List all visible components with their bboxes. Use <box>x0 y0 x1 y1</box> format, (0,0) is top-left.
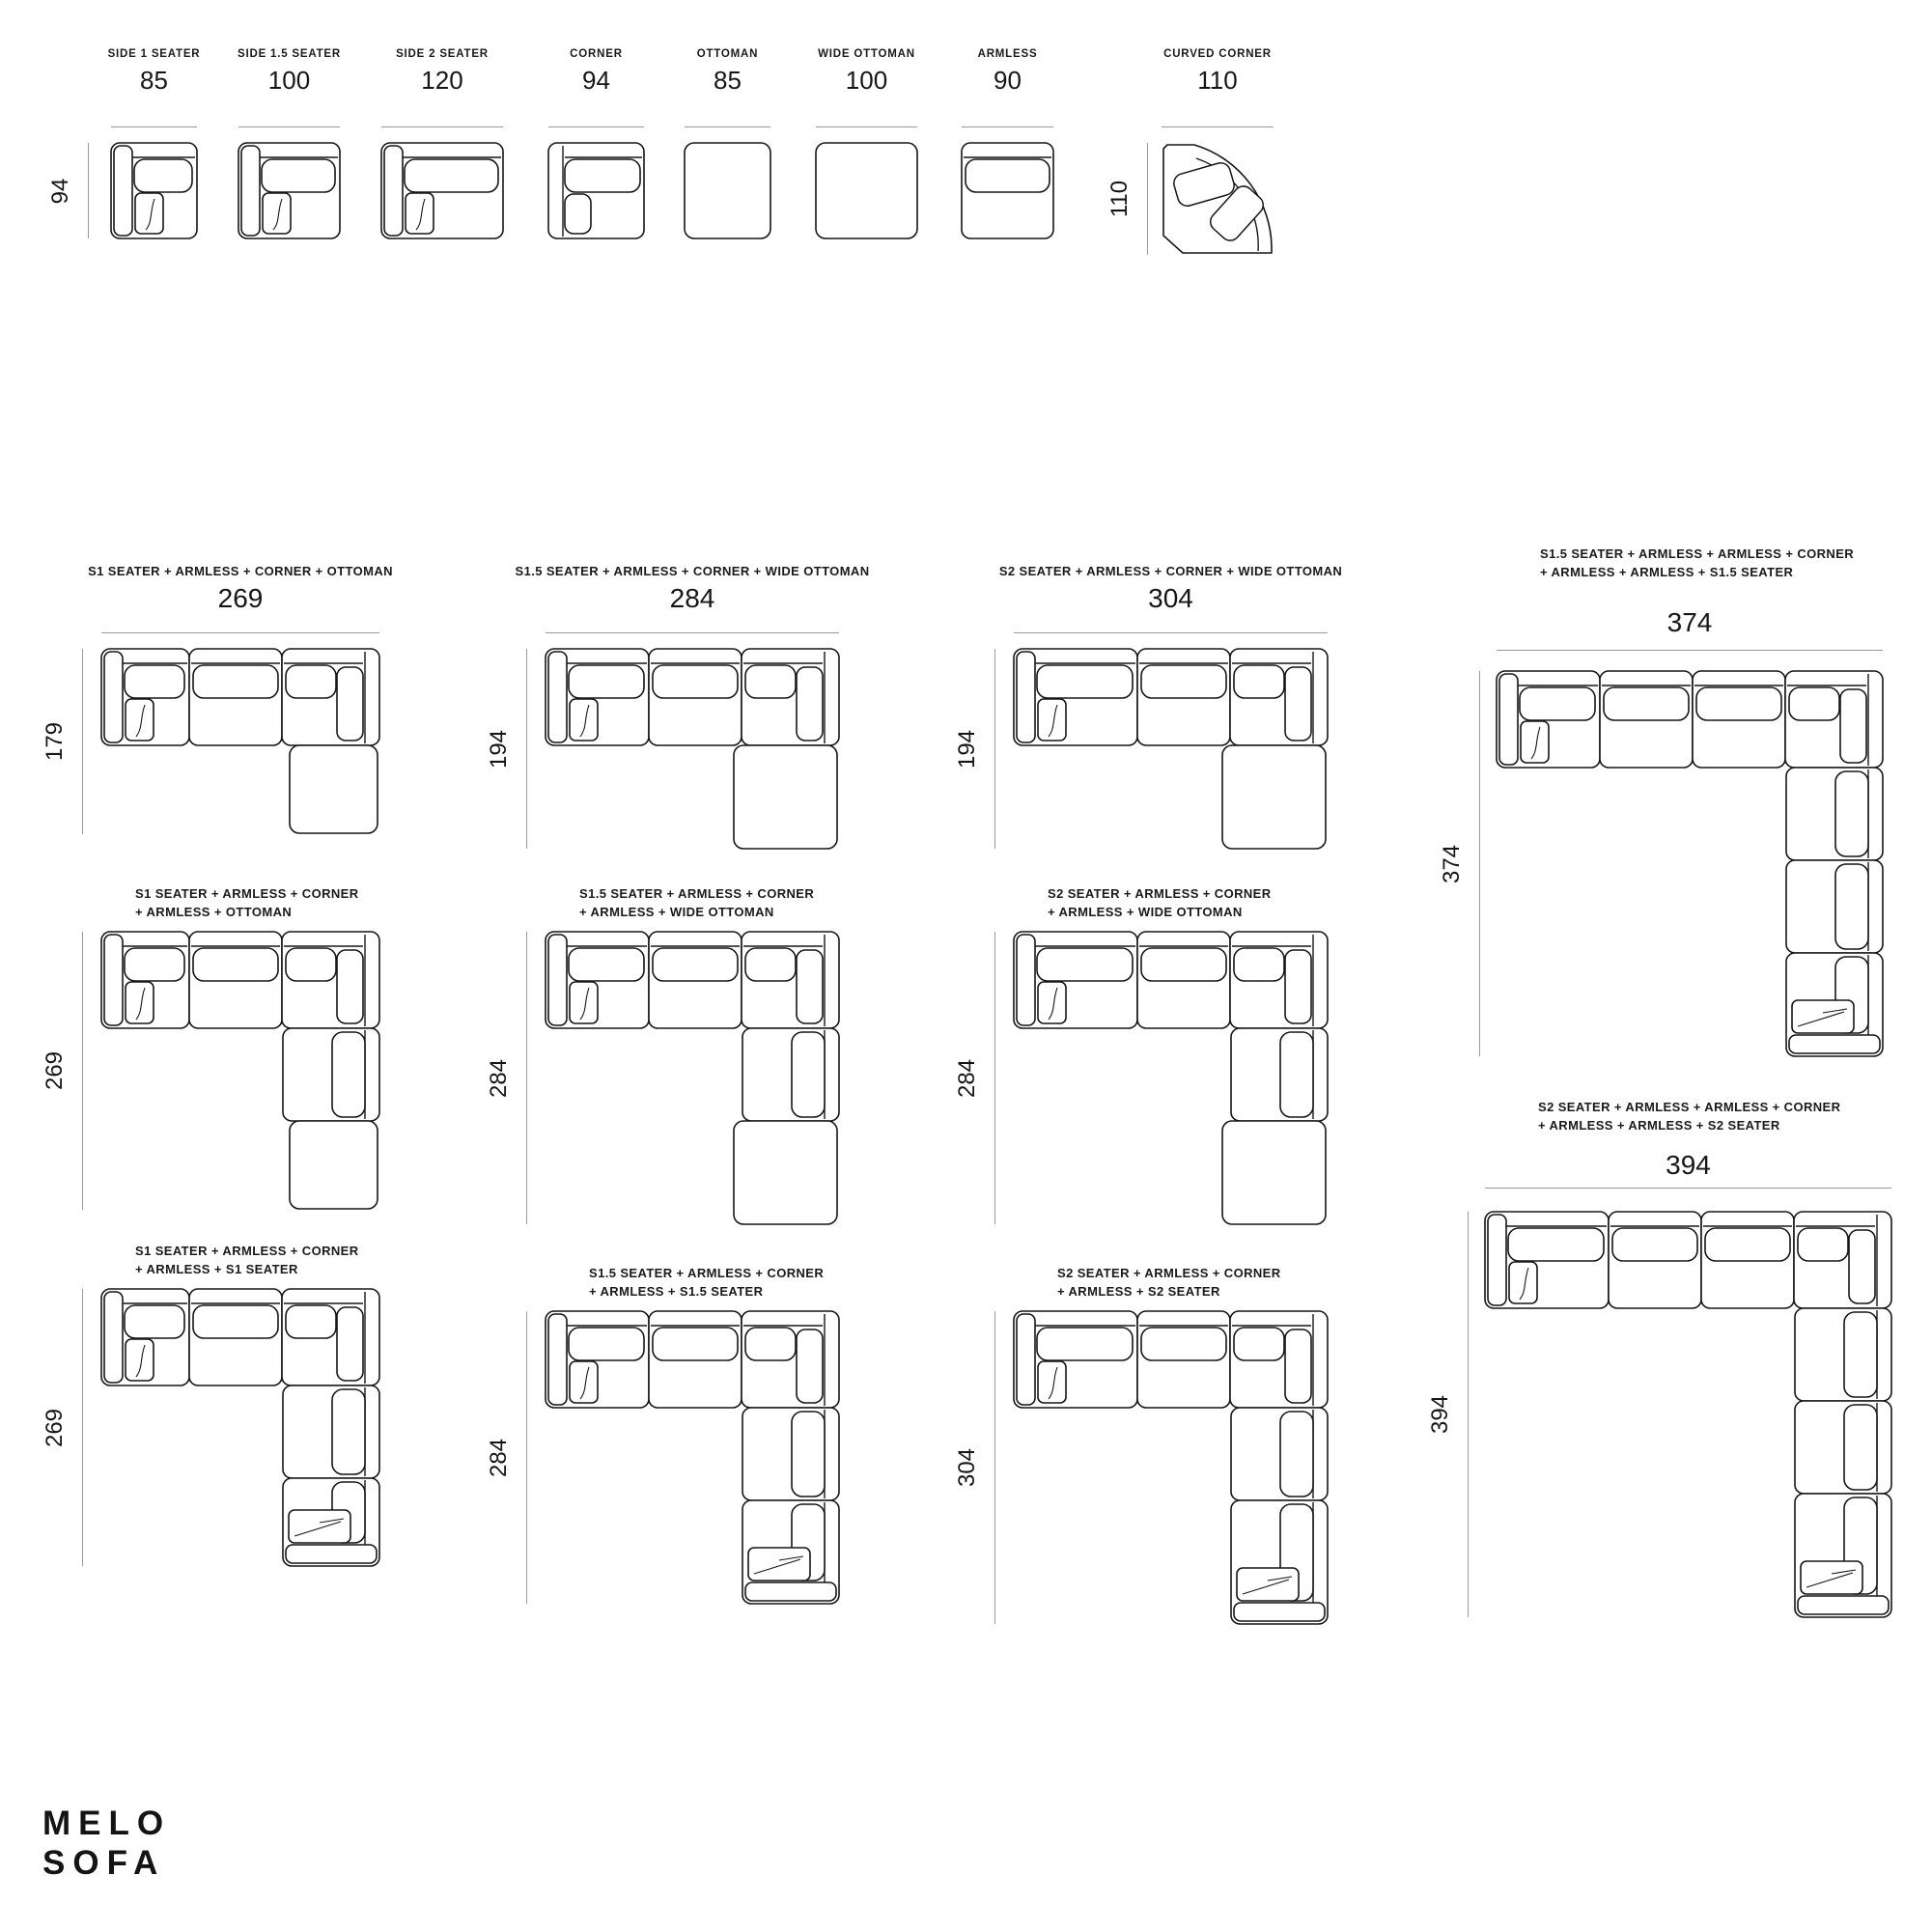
config-width-dim: 394 <box>1485 1150 1891 1181</box>
module-width-dim: 85 <box>714 66 742 96</box>
sofa-config-top-view-diagram <box>1012 1309 1333 1626</box>
config-height-dim: 284 <box>486 1438 513 1476</box>
config-title: S2 SEATER + ARMLESS + CORNER+ ARMLESS + … <box>1057 1265 1281 1301</box>
module-depth-dim: 94 <box>47 178 74 204</box>
sofa-config-top-view-diagram <box>99 1287 385 1568</box>
module-width-dim: 110 <box>1197 66 1237 96</box>
dim-line-vertical: 269 <box>82 932 83 1210</box>
dim-line-horizontal <box>546 632 839 633</box>
dim-line-vertical: 194 <box>526 649 527 849</box>
module-width-dim: 90 <box>994 66 1022 96</box>
config-height-dim: 374 <box>1439 844 1466 882</box>
module-corner: CORNER 94 <box>548 143 644 238</box>
sofa-module-top-view-diagram <box>109 141 199 240</box>
dim-line-vertical: 94 <box>88 143 89 238</box>
module-width-dim: 94 <box>582 66 610 96</box>
dim-line-horizontal <box>101 632 379 633</box>
product-title-line1: MELO <box>42 1804 171 1843</box>
module-side-1-seater: SIDE 1 SEATER 85 94 <box>111 143 197 238</box>
config-height-dim: 179 <box>42 722 69 761</box>
dim-line-vertical: 284 <box>526 932 527 1224</box>
product-title: MELO SOFA <box>42 1804 171 1884</box>
dim-line-vertical: 394 <box>1468 1212 1469 1617</box>
sofa-config-top-view-diagram <box>544 930 845 1226</box>
module-name: OTTOMAN <box>697 48 759 60</box>
module-name: WIDE OTTOMAN <box>818 48 915 60</box>
sofa-config-top-view-diagram <box>1012 930 1333 1226</box>
config-height-dim: 269 <box>42 1051 69 1090</box>
config-title: S1.5 SEATER + ARMLESS + CORNER+ ARMLESS … <box>579 885 814 922</box>
dim-line-horizontal <box>111 126 197 127</box>
sofa-config-top-view-diagram <box>99 647 385 835</box>
sofa-config-top-view-diagram <box>99 930 385 1211</box>
sofa-module-top-view-diagram <box>683 141 772 240</box>
dim-line-vertical: 194 <box>994 649 995 849</box>
sofa-module-top-view-diagram <box>546 141 646 240</box>
dim-line-vertical: 179 <box>82 649 83 834</box>
sofa-module-top-view-diagram <box>237 141 342 240</box>
sofa-config-top-view-diagram <box>1012 647 1333 851</box>
dim-line-horizontal <box>238 126 340 127</box>
module-name: ARMLESS <box>978 48 1038 60</box>
module-width-dim: 100 <box>846 66 887 96</box>
module-name: CURVED CORNER <box>1163 48 1272 60</box>
config-title: S1 SEATER + ARMLESS + CORNER + OTTOMAN <box>88 563 393 581</box>
config-title: S1 SEATER + ARMLESS + CORNER+ ARMLESS + … <box>135 885 359 922</box>
module-name: SIDE 2 SEATER <box>396 48 489 60</box>
config-height-dim: 304 <box>954 1448 981 1487</box>
module-name: SIDE 1.5 SEATER <box>238 48 341 60</box>
dim-line-horizontal <box>816 126 917 127</box>
dim-line-horizontal <box>1014 632 1328 633</box>
module-side-2-seater: SIDE 2 SEATER 120 <box>381 143 503 238</box>
sofa-module-top-view-diagram <box>1160 141 1275 257</box>
dim-line-horizontal <box>1485 1188 1891 1189</box>
product-title-line2: SOFA <box>42 1843 171 1883</box>
config-width-dim: 374 <box>1497 607 1883 638</box>
config-title: S1.5 SEATER + ARMLESS + CORNER + WIDE OT… <box>515 563 869 581</box>
config-title: S2 SEATER + ARMLESS + ARMLESS + CORNER+ … <box>1538 1099 1840 1135</box>
module-width-dim: 85 <box>140 66 168 96</box>
sofa-config-top-view-diagram <box>544 647 845 851</box>
dim-line-horizontal <box>381 126 503 127</box>
dim-line-vertical: 110 <box>1147 143 1148 255</box>
config-title: S1 SEATER + ARMLESS + CORNER+ ARMLESS + … <box>135 1243 359 1279</box>
module-side-1-5-seater: SIDE 1.5 SEATER 100 <box>238 143 340 238</box>
dim-line-vertical: 284 <box>526 1311 527 1604</box>
config-height-dim: 269 <box>42 1408 69 1446</box>
config-height-dim: 284 <box>486 1058 513 1097</box>
dim-line-horizontal <box>685 126 770 127</box>
module-width-dim: 100 <box>268 66 310 96</box>
module-ottoman: OTTOMAN 85 <box>685 143 770 238</box>
config-height-dim: 284 <box>954 1058 981 1097</box>
config-width-dim: 284 <box>546 583 839 614</box>
module-curved-corner: CURVED CORNER 110 110 <box>1162 143 1274 255</box>
config-height-dim: 394 <box>1427 1395 1454 1434</box>
module-depth-dim: 110 <box>1106 181 1134 217</box>
dim-line-vertical: 374 <box>1479 671 1480 1056</box>
module-name: SIDE 1 SEATER <box>108 48 201 60</box>
dim-line-horizontal <box>548 126 644 127</box>
config-height-dim: 194 <box>486 729 513 768</box>
dim-line-horizontal <box>1162 126 1274 127</box>
sofa-config-top-view-diagram <box>1483 1210 1897 1619</box>
sofa-config-top-view-diagram <box>544 1309 845 1606</box>
dim-line-vertical: 269 <box>82 1289 83 1566</box>
module-armless: ARMLESS 90 <box>962 143 1053 238</box>
melo-sofa-spec-sheet: SIDE 1 SEATER 85 94 SIDE 1.5 SEATER 100 … <box>0 0 1932 1931</box>
dim-line-horizontal <box>962 126 1053 127</box>
sofa-module-top-view-diagram <box>814 141 919 240</box>
module-name: CORNER <box>570 48 623 60</box>
module-wide-ottoman: WIDE OTTOMAN 100 <box>816 143 917 238</box>
dim-line-vertical: 284 <box>994 932 995 1224</box>
config-width-dim: 269 <box>101 583 379 614</box>
module-width-dim: 120 <box>421 66 462 96</box>
sofa-module-top-view-diagram <box>960 141 1055 240</box>
sofa-module-top-view-diagram <box>379 141 505 240</box>
config-title: S1.5 SEATER + ARMLESS + ARMLESS + CORNER… <box>1540 546 1854 582</box>
config-title: S2 SEATER + ARMLESS + CORNER + WIDE OTTO… <box>999 563 1342 581</box>
sofa-config-top-view-diagram <box>1495 669 1889 1058</box>
dim-line-vertical: 304 <box>994 1311 995 1624</box>
config-width-dim: 304 <box>1014 583 1328 614</box>
config-title: S2 SEATER + ARMLESS + CORNER+ ARMLESS + … <box>1048 885 1272 922</box>
dim-line-horizontal <box>1497 650 1883 651</box>
config-title: S1.5 SEATER + ARMLESS + CORNER+ ARMLESS … <box>589 1265 824 1301</box>
config-height-dim: 194 <box>954 729 981 768</box>
